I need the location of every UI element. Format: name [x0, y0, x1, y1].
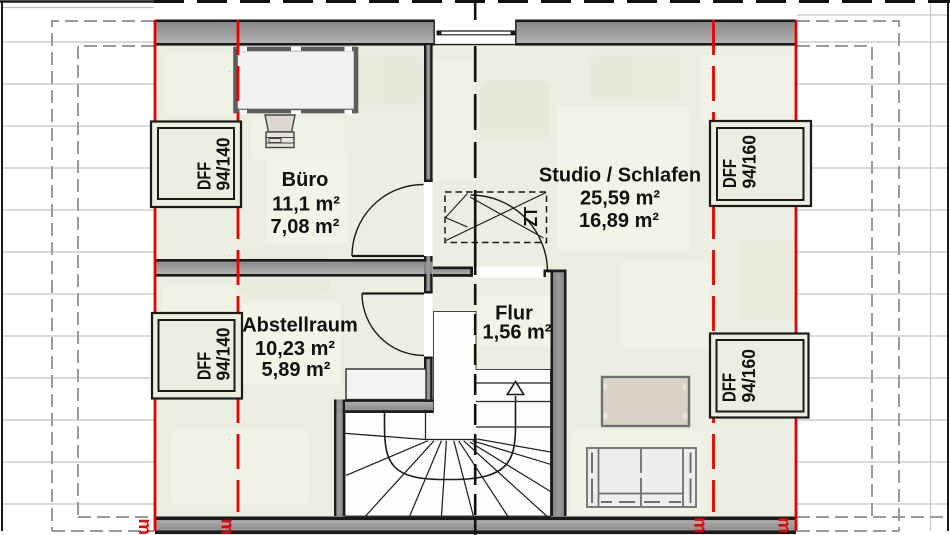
svg-text:m: m — [775, 517, 796, 533]
svg-text:Studio / Schlafen: Studio / Schlafen — [539, 165, 701, 187]
svg-text:DFF: DFF — [193, 352, 214, 380]
svg-text:10,23 m²: 10,23 m² — [255, 338, 335, 360]
svg-text:Abstellraum: Abstellraum — [242, 315, 358, 337]
svg-text:DFF: DFF — [193, 162, 214, 190]
svg-text:m: m — [218, 519, 239, 535]
svg-text:7,08 m²: 7,08 m² — [271, 216, 340, 238]
svg-text:94/160: 94/160 — [738, 349, 759, 403]
svg-text:DFF: DFF — [719, 159, 740, 188]
svg-text:11,1 m²: 11,1 m² — [272, 194, 340, 216]
svg-text:Büro: Büro — [282, 169, 329, 191]
svg-text:ZT: ZT — [521, 207, 541, 227]
svg-text:25,59 m²: 25,59 m² — [580, 188, 660, 210]
svg-text:DFF: DFF — [719, 373, 740, 402]
svg-text:94/140: 94/140 — [212, 328, 233, 381]
svg-text:1,56 m²: 1,56 m² — [483, 322, 552, 344]
svg-text:94/160: 94/160 — [739, 135, 760, 189]
svg-text:94/140: 94/140 — [212, 138, 233, 191]
svg-text:m: m — [135, 519, 156, 535]
svg-text:5,89 m²: 5,89 m² — [262, 359, 331, 381]
svg-text:16,89 m²: 16,89 m² — [579, 210, 659, 232]
svg-text:m: m — [691, 517, 712, 533]
